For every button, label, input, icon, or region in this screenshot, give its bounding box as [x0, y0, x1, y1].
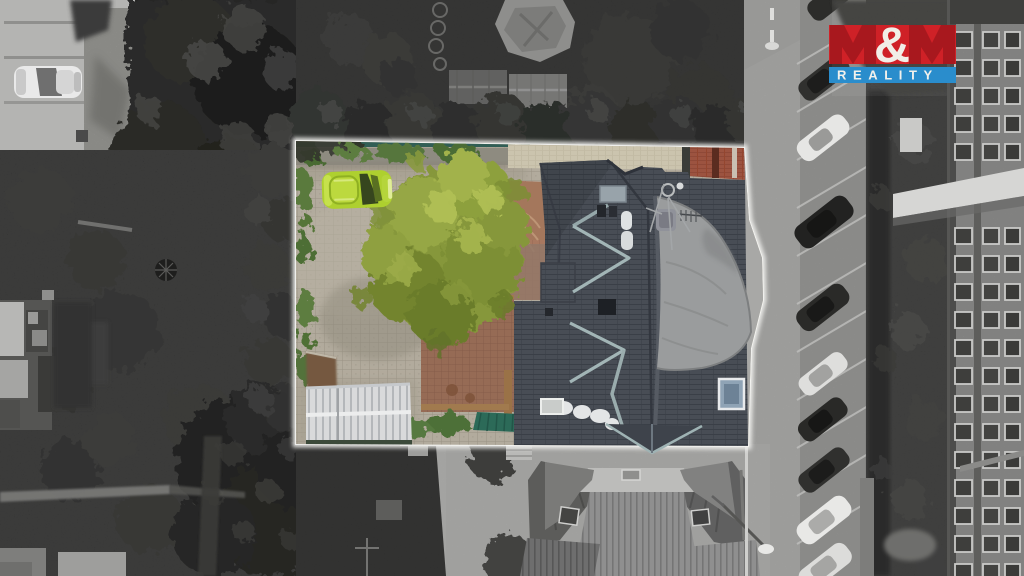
svg-text:&: &	[874, 17, 910, 73]
svg-text:REALITY: REALITY	[837, 68, 939, 83]
